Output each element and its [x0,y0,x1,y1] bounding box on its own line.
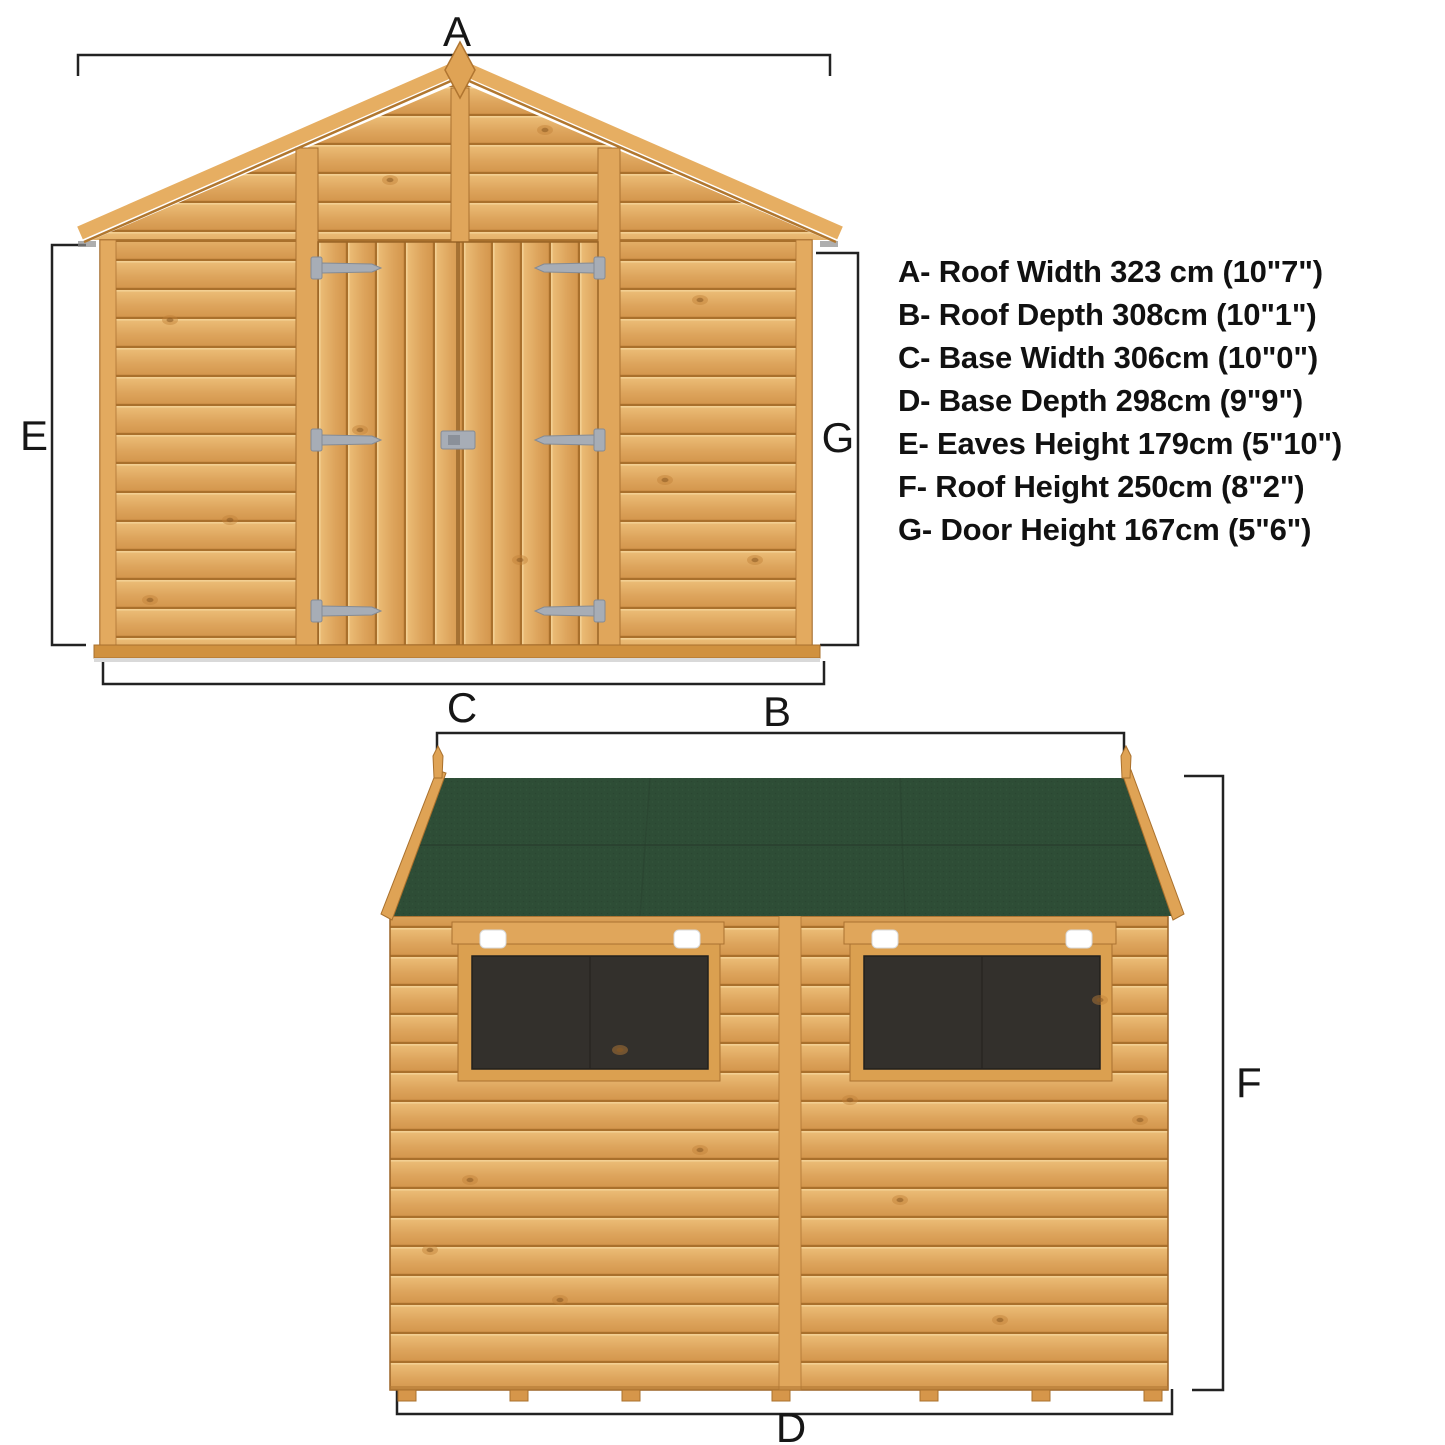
spec-line-base-depth: D- Base Depth 298cm (9"9") [898,379,1342,422]
front-double-doors [311,242,605,645]
side-elevation: B F D [381,688,1262,1445]
front-door-frame-right [598,148,620,645]
front-elevation: A E G C [20,8,858,731]
front-corner-trim-left [100,240,116,646]
door-hinge [311,429,322,451]
side-roof [381,746,1184,920]
dim-b-bracket [437,733,1124,762]
door-hinge [311,257,322,279]
dim-label-roof-depth: B [763,688,791,735]
base-foot [398,1390,416,1401]
door-hinge [322,606,381,616]
dim-label-eaves-height: E [20,412,48,459]
front-gable-batten-center [451,88,469,242]
roof-finial-right [1121,746,1131,778]
door-hinge [594,429,605,451]
front-door-frame-left [296,148,318,645]
door-hinge [535,606,594,616]
front-corner-trim-right [796,240,812,646]
dim-label-base-width: C [447,684,477,731]
base-foot [772,1390,790,1401]
window-left [452,922,724,1081]
door-hinge [535,263,594,273]
spec-line-door-height: G- Door Height 167cm (5"6") [898,508,1342,551]
dim-label-door-height: G [822,414,855,461]
spec-line-eaves-height: E- Eaves Height 179cm (5"10") [898,422,1342,465]
spec-line-roof-width: A- Roof Width 323 cm (10"7") [898,250,1342,293]
front-base-strip [94,645,820,658]
shed-dimension-diagram: A E G C [0,0,1445,1445]
dim-label-roof-height: F [1236,1059,1262,1106]
front-base-shadow [94,658,820,662]
window-clip [480,930,506,948]
spec-line-base-width: C- Base Width 306cm (10"0") [898,336,1342,379]
dim-f-bracket [1184,776,1223,1390]
side-base-feet [398,1390,1162,1401]
dimension-spec-list: A- Roof Width 323 cm (10"7") B- Roof Dep… [898,250,1342,551]
side-center-batten [779,916,801,1390]
window-clip [872,930,898,948]
base-foot [510,1390,528,1401]
door-hinge [594,600,605,622]
door-latch [441,431,475,449]
door-hinge [311,600,322,622]
base-foot [1032,1390,1050,1401]
door-hinge [322,263,381,273]
base-foot [1144,1390,1162,1401]
window-clip [1066,930,1092,948]
door-hinge [535,435,594,445]
roof-felt-texture [385,778,1180,916]
dim-label-roof-width: A [443,8,471,55]
side-base-edge [390,1386,1168,1390]
spec-line-roof-height: F- Roof Height 250cm (8"2") [898,465,1342,508]
dim-label-base-depth: D [776,1404,806,1445]
door-hinge [322,435,381,445]
base-foot [622,1390,640,1401]
window-right [844,922,1116,1081]
window-clip [674,930,700,948]
dim-e-bracket [52,245,86,645]
dim-c-bracket [103,661,824,684]
roof-finial-left [433,746,443,778]
door-latch-detail [448,435,460,445]
door-hinge [594,257,605,279]
base-foot [920,1390,938,1401]
diagram-drawing: A E G C [0,0,1445,1445]
spec-line-roof-depth: B- Roof Depth 308cm (10"1") [898,293,1342,336]
